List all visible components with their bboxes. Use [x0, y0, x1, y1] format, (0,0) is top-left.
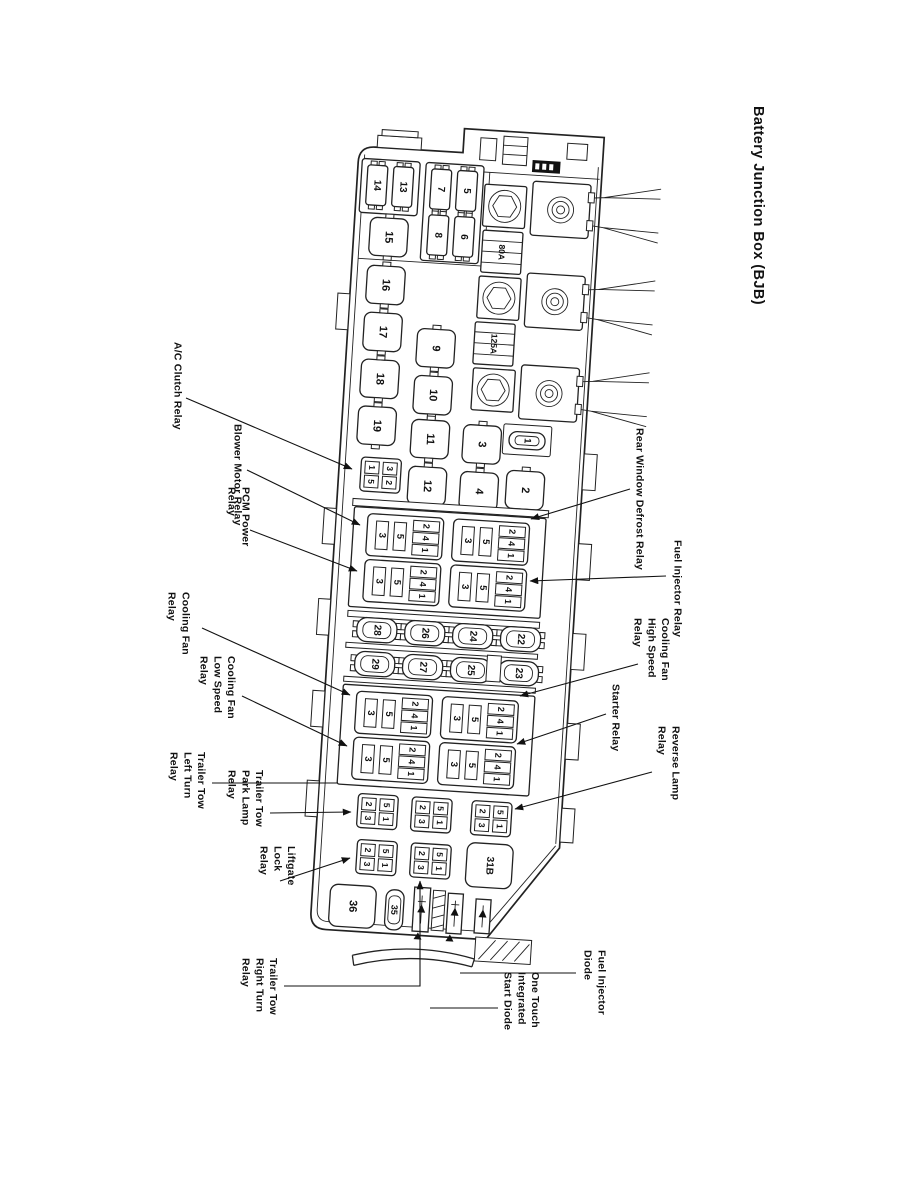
relay-10: 10 — [412, 371, 453, 419]
callout-fuel-injector-relay: Fuel Injector Relay — [670, 540, 684, 637]
part-number: 29 — [369, 658, 381, 670]
part-number: 5 — [366, 479, 376, 485]
callout-cooling-fan-high-speed-relay: Cooling Fan High Speed Relay — [630, 618, 671, 681]
socket-blower-motor: 35241 — [366, 513, 444, 560]
callout-starter-relay: Starter Relay — [608, 684, 622, 751]
fuse-26: 26 — [400, 620, 449, 647]
part-number: 1 — [495, 824, 505, 830]
relay-15: 15 — [368, 213, 409, 261]
relay-19: 19 — [356, 402, 397, 450]
callout-reverse-lamp-relay: Reverse Lamp Relay — [654, 726, 681, 800]
socket-cooling-fan-low: 35241 — [351, 737, 429, 784]
part-number: 24 — [467, 630, 479, 642]
socket-rear-defrost: 35241 — [451, 519, 529, 566]
part-label-chip — [532, 160, 561, 174]
fuse-5: 5 — [455, 166, 478, 215]
socket-tt-park-lamp: 2531 — [356, 793, 398, 829]
relay-1: 1 — [502, 424, 552, 457]
relay-9: 9 — [415, 324, 456, 372]
part-number: 5 — [435, 852, 445, 858]
part-number: 3 — [448, 761, 459, 767]
fuse-strip: 28 26 24 22 29 27 25 23 — [344, 610, 546, 693]
part-number: 14 — [371, 179, 383, 191]
part-number: 5 — [495, 810, 505, 816]
callout-trailer-tow-right-turn-relay: Trailer Tow Right Turn Relay — [238, 958, 279, 1015]
fuse-28: 28 — [352, 617, 401, 644]
part-number: 25 — [465, 664, 477, 676]
part-number: 3 — [363, 815, 373, 821]
relay-socket-band-1: 35241 35241 35241 35241 — [346, 498, 548, 618]
part-number: 19 — [370, 419, 383, 432]
socket-mini-center: 2531 — [410, 797, 452, 833]
part-number: 1 — [435, 820, 445, 826]
part-number: 26 — [419, 627, 431, 639]
part-number: 1 — [409, 725, 419, 731]
part-number: 3 — [362, 756, 373, 762]
fuse-box: 14 13 7 5 8 6 80A — [296, 121, 664, 981]
fuse-22: 22 — [496, 626, 545, 653]
part-number: 1 — [417, 593, 427, 599]
socket-cooling-fan: 35241 — [354, 691, 432, 738]
part-number: 2 — [493, 752, 503, 758]
one-touch-start-diode — [446, 893, 463, 934]
part-number: 11 — [424, 433, 437, 445]
part-number: 4 — [406, 759, 416, 765]
callout-ac-clutch-relay: A/C Clutch Relay — [170, 342, 184, 430]
block-31b-label: 31B — [483, 856, 495, 875]
fuse-link-80a-label: 80A — [496, 244, 507, 260]
part-number: 3 — [417, 819, 427, 825]
part-number: 28 — [371, 624, 383, 636]
fuel-injector-diode — [412, 887, 431, 932]
socket-liftgate-lock: 2531 — [356, 839, 398, 875]
callout-one-touch-integrated-start-diode: One Touch Integrated Start Diode — [500, 972, 541, 1030]
relay-18: 18 — [359, 355, 400, 403]
bjb-diagram: 14 13 7 5 8 6 80A — [0, 0, 918, 1188]
part-number: 2 — [364, 801, 374, 807]
part-number: 1 — [503, 599, 513, 605]
part-number: 13 — [397, 181, 409, 193]
part-number: 1 — [380, 862, 390, 868]
part-number: 2 — [410, 701, 420, 707]
line-tt-park — [270, 812, 351, 813]
fuse-29: 29 — [350, 651, 399, 678]
fuse-24: 24 — [448, 623, 497, 650]
callout-cooling-fan-relay: Cooling Fan Relay — [164, 592, 191, 655]
callout-trailer-tow-park-lamp-relay: Trailer Tow Park Lamp Relay — [224, 770, 265, 827]
callout-fuel-injector-diode: Fuel Injector Diode — [580, 950, 607, 1015]
block-36-label: 36 — [346, 900, 359, 913]
socket-cooling-fan-high: 35241 — [440, 696, 518, 743]
part-number: 2 — [384, 480, 394, 486]
socket-starter: 35241 — [437, 742, 515, 789]
relay-17: 17 — [362, 308, 403, 356]
line-reverse — [515, 772, 652, 809]
part-number: 5 — [381, 849, 391, 855]
block-36: 36 — [328, 884, 377, 929]
part-number: 3 — [416, 865, 426, 871]
socket-reverse-lamp: 2531 — [470, 801, 512, 837]
part-number: 2 — [421, 523, 431, 529]
part-number: 22 — [515, 633, 527, 645]
part-number: 2 — [504, 575, 514, 581]
fuse-8: 8 — [426, 211, 449, 260]
part-number: 2 — [407, 747, 417, 753]
line-cooling-fan-low — [242, 696, 347, 746]
part-number: 2 — [417, 851, 427, 857]
socket-fuel-injector: 35241 — [448, 565, 526, 612]
part-number: 2 — [507, 529, 517, 535]
part-number: 5 — [436, 806, 446, 812]
page-title: Battery Junction Box (BJB) — [748, 106, 767, 305]
part-number: 16 — [379, 279, 392, 292]
part-number: 18 — [373, 372, 386, 385]
part-number: 3 — [362, 861, 372, 867]
part-number: 3 — [385, 466, 395, 472]
callout-pcm-power-relay: PCM Power Relay — [224, 487, 251, 547]
fuse-27: 27 — [398, 654, 447, 681]
callout-rear-window-defrost-relay: Rear Window Defrost Relay — [632, 428, 646, 570]
callout-cooling-fan-low-speed-relay: Cooling Fan Low Speed Relay — [196, 656, 237, 719]
document-page: 14 13 7 5 8 6 80A — [0, 0, 918, 1188]
part-number: 4 — [418, 581, 428, 587]
part-number: 2 — [478, 809, 488, 815]
part-number: 1 — [381, 816, 391, 822]
part-number: 4 — [492, 764, 502, 770]
line-fuel-relay — [530, 576, 666, 581]
mini-socket-group: 2531 2531 2531 2531 2531 31B — [353, 793, 516, 889]
part-number: 27 — [417, 661, 429, 673]
part-number: 3 — [376, 532, 387, 538]
part-number: 1 — [492, 776, 502, 782]
diode-3 — [474, 899, 491, 934]
part-number: 4 — [421, 535, 431, 541]
part-number: 2 — [418, 805, 428, 811]
socket-ac-clutch: 1352 — [360, 457, 402, 493]
relay-2: 2 — [505, 466, 546, 514]
part-number: 3 — [462, 538, 473, 544]
part-number: 12 — [421, 480, 434, 493]
part-number: 1 — [406, 771, 416, 777]
part-number: 9 — [429, 345, 441, 352]
callout-liftgate-lock-relay: Liftgate Lock Relay — [256, 846, 297, 886]
callout-trailer-tow-left-turn-relay: Trailer Tow Left Turn Relay — [166, 752, 207, 809]
part-number: 1 — [494, 730, 504, 736]
part-number: 3 — [451, 715, 462, 721]
fuse-35-label: 35 — [389, 905, 400, 916]
part-number: 4 — [409, 713, 419, 719]
part-number: 1 — [420, 547, 430, 553]
relay-socket-band-2: 35241 35241 35241 35241 — [337, 684, 535, 796]
relay-3: 3 — [461, 420, 502, 468]
block-31b: 31B — [465, 842, 514, 889]
part-number: 1 — [434, 866, 444, 872]
part-number: 5 — [382, 802, 392, 808]
fuse-link-125a-label: 125A — [488, 334, 499, 355]
part-number: 4 — [495, 719, 505, 725]
relay-16: 16 — [365, 261, 406, 309]
part-number: 3 — [365, 710, 376, 716]
part-number: 3 — [373, 578, 384, 584]
part-number: 4 — [504, 587, 514, 593]
part-number: 17 — [376, 325, 389, 338]
fuse-14: 14 — [365, 161, 388, 210]
relay-11: 11 — [410, 415, 451, 463]
part-number: 3 — [459, 584, 470, 590]
part-number: 3 — [477, 822, 487, 828]
fuse-6: 6 — [452, 212, 475, 261]
part-number: 2 — [418, 569, 428, 575]
part-number: 15 — [382, 231, 395, 244]
fuse-7: 7 — [429, 165, 452, 214]
part-number: 23 — [513, 667, 525, 679]
terminal-studs: 80A 125A — [469, 178, 661, 427]
part-number: 2 — [363, 847, 373, 853]
line-ac-clutch — [186, 398, 352, 469]
part-number: 2 — [496, 707, 506, 713]
part-number: 2 — [519, 487, 531, 494]
socket-pcm-power: 35241 — [363, 559, 441, 606]
part-number: 1 — [367, 465, 377, 471]
fuse-35: 35 — [384, 889, 404, 930]
part-number: 10 — [426, 389, 439, 402]
part-number: 3 — [476, 441, 488, 448]
fuse-13: 13 — [391, 162, 414, 211]
part-number: 1 — [506, 553, 516, 559]
part-number: 4 — [506, 541, 516, 547]
socket-tt-right-turn: 2531 — [409, 843, 451, 879]
